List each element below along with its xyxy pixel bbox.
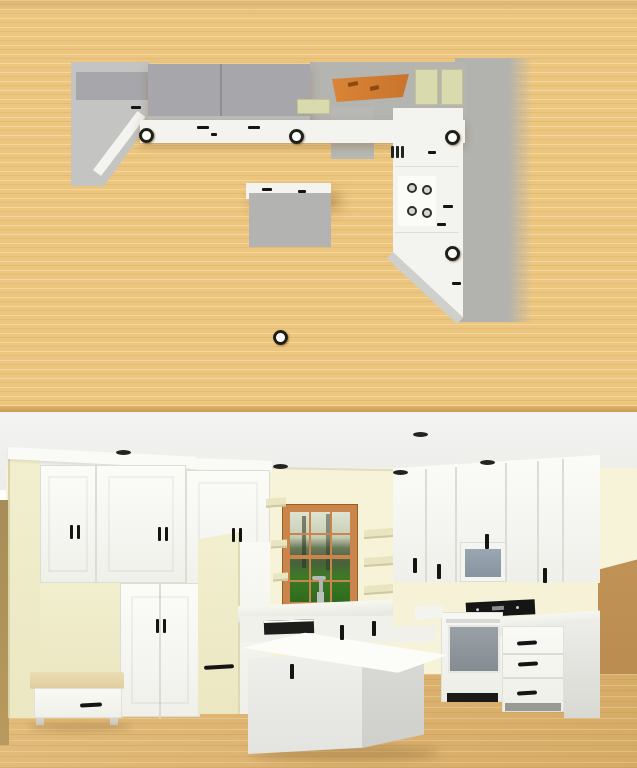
pantry-door-seam	[159, 584, 161, 718]
plan-ceiling-light	[139, 128, 154, 143]
bench-shadow	[28, 723, 132, 731]
bench-drawer	[34, 688, 122, 718]
oven-window	[448, 625, 500, 673]
cabinet-handle	[290, 664, 294, 679]
upper-door-seam	[562, 459, 564, 587]
plan-cabinet-divider	[220, 64, 222, 122]
plan-shelf-block-left	[297, 99, 330, 114]
plan-ceiling-light	[445, 130, 460, 145]
plan-handle-tick	[211, 133, 217, 136]
plan-west-cabinet-top	[76, 72, 148, 100]
window-tree	[302, 516, 306, 568]
cabinet-handle	[543, 568, 547, 583]
cabinet-handle	[163, 619, 166, 633]
plan-shelf-block-right2	[441, 69, 463, 105]
shelf-tab	[266, 497, 286, 507]
plan-handle-tick	[131, 106, 141, 109]
oven-door-handle	[446, 619, 500, 623]
upper-door-seam	[455, 467, 457, 587]
dishwasher-control-panel	[264, 619, 314, 635]
plan-dishwasher-mark	[401, 146, 404, 158]
upper-door-seam	[537, 461, 539, 587]
cabinet-handle	[239, 528, 242, 542]
plan-east-wall	[455, 58, 533, 322]
cabinet-handle	[70, 525, 73, 539]
plan-dishwasher-mark	[391, 146, 394, 158]
shelf-tab	[271, 539, 287, 548]
tall-pantry-doors	[120, 583, 200, 717]
ceiling-recessed-light	[480, 460, 495, 465]
plan-counter-seam	[395, 232, 459, 233]
cabinet-handle	[340, 625, 344, 640]
drawer-seam	[503, 653, 563, 655]
drawer-seam	[503, 677, 563, 679]
plan-shelf-block-right1	[415, 69, 438, 105]
plan-window-mark	[348, 81, 359, 87]
plan-ceiling-light	[445, 246, 460, 261]
microwave	[460, 542, 506, 582]
cabinet-handle	[232, 528, 235, 542]
plan-handle-tick	[443, 205, 453, 208]
ceiling-recessed-light	[413, 432, 428, 437]
ceiling-recessed-light	[393, 470, 408, 475]
refrigerator-panel	[198, 532, 240, 714]
microwave-door-screen	[465, 549, 501, 577]
window-muntin-h	[290, 533, 350, 535]
window-meeting-rail	[290, 555, 350, 559]
cooktop-burner	[407, 183, 417, 193]
faucet-base	[317, 592, 324, 603]
upper-cabinet-door	[40, 465, 96, 583]
plan-handle-tick	[298, 190, 306, 193]
range-oven-body	[441, 612, 503, 702]
cabinet-handle	[77, 525, 80, 539]
plan-handle-tick	[428, 151, 436, 154]
plan-ceiling-light	[289, 129, 304, 144]
cabinet-handle	[413, 558, 417, 573]
island-base-front	[248, 650, 362, 754]
plan-ceiling-light	[273, 330, 288, 345]
alcove-back-panel	[40, 583, 120, 677]
toe-kick	[505, 703, 561, 711]
ceiling-recessed-light	[116, 450, 131, 455]
kitchen-design-screenshot	[0, 0, 637, 768]
cooktop-burner	[422, 208, 432, 218]
plan-dishwasher-mark	[396, 146, 399, 158]
plan-handle-tick	[262, 188, 272, 191]
cabinet-handle	[158, 527, 161, 541]
counter-left-of-range	[415, 605, 443, 620]
plan-handle-tick	[437, 223, 446, 226]
cabinet-handle	[165, 527, 168, 541]
plan-window-mark	[370, 85, 380, 91]
upper-door-seam	[425, 469, 427, 587]
ceiling-recessed-light	[273, 464, 288, 469]
plan-island-base	[249, 193, 331, 247]
oven-kick-panel	[447, 693, 498, 702]
cabinet-handle	[437, 564, 441, 579]
shelf-tab	[273, 572, 288, 581]
cabinet-handle	[485, 534, 489, 549]
cooktop-burner	[422, 185, 432, 195]
cabinet-handle	[156, 619, 159, 633]
plan-counter-seam	[395, 166, 459, 167]
plan-handle-tick	[197, 126, 209, 129]
plan-handle-tick	[452, 282, 461, 285]
plan-north-wall-cabinets	[148, 64, 310, 122]
bench-cushion	[30, 672, 124, 689]
upper-cabinet-door	[96, 465, 186, 583]
cabinet-handle	[372, 621, 376, 636]
drawer-base-cabinet	[502, 626, 564, 712]
range-knob	[516, 606, 519, 609]
plan-handle-tick	[248, 126, 260, 129]
range-knob	[476, 608, 479, 611]
cooktop-burner	[407, 206, 417, 216]
range-knob	[492, 606, 504, 611]
plan-cooktop-area	[398, 176, 436, 226]
base-end-panel-shade	[564, 620, 600, 718]
